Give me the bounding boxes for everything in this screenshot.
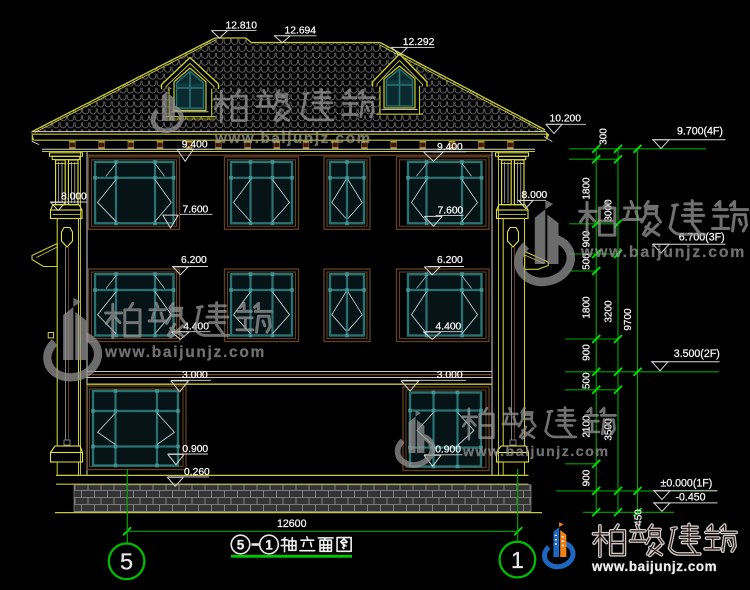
svg-text:-0.450: -0.450	[676, 492, 706, 504]
svg-text:10.200: 10.200	[550, 114, 582, 125]
svg-text:12.810: 12.810	[226, 20, 258, 31]
svg-text:500: 500	[582, 372, 593, 389]
svg-text:12600: 12600	[277, 518, 307, 530]
svg-text:0.260: 0.260	[184, 467, 210, 478]
svg-text:www.baijunjz.com: www.baijunjz.com	[591, 559, 717, 574]
svg-text:3.000: 3.000	[437, 370, 463, 381]
svg-text:1: 1	[265, 537, 273, 552]
svg-text:www.baijunjz.com: www.baijunjz.com	[580, 244, 746, 261]
svg-text:9700: 9700	[623, 308, 634, 331]
svg-text:7.600: 7.600	[438, 205, 464, 216]
svg-text:5: 5	[120, 549, 133, 575]
svg-text:6.200: 6.200	[181, 255, 207, 266]
svg-text:4.400: 4.400	[436, 322, 462, 333]
svg-text:±0.000(1F): ±0.000(1F)	[661, 477, 713, 489]
svg-text:9.400: 9.400	[437, 142, 463, 153]
svg-text:www.baijunjz.com: www.baijunjz.com	[104, 344, 266, 361]
svg-text:6.200: 6.200	[437, 255, 463, 266]
svg-text:12.694: 12.694	[285, 25, 317, 36]
svg-text:www.baijunjz.com: www.baijunjz.com	[214, 130, 372, 147]
svg-text:8.000: 8.000	[61, 192, 87, 203]
svg-text:900: 900	[582, 344, 593, 361]
svg-text:0.900: 0.900	[435, 445, 461, 456]
svg-text:www.baijunjz.com: www.baijunjz.com	[462, 444, 609, 460]
svg-text:9.700(4F): 9.700(4F)	[677, 126, 723, 138]
svg-text:7.600: 7.600	[183, 204, 209, 215]
svg-text:900: 900	[582, 469, 593, 486]
svg-text:1: 1	[511, 547, 524, 573]
svg-text:3200: 3200	[603, 300, 614, 323]
svg-text:5: 5	[237, 537, 245, 552]
svg-text:8.000: 8.000	[522, 190, 548, 201]
svg-text:300: 300	[599, 128, 610, 145]
svg-text:12.292: 12.292	[403, 37, 435, 48]
svg-text:2100: 2100	[582, 415, 593, 438]
svg-text:1800: 1800	[582, 177, 593, 200]
svg-text:0.900: 0.900	[182, 444, 208, 455]
svg-text:3000: 3000	[603, 199, 614, 222]
svg-text:3.000: 3.000	[182, 370, 208, 381]
svg-text:1800: 1800	[582, 296, 593, 319]
svg-text:450: 450	[634, 509, 645, 526]
svg-text:3.500(2F): 3.500(2F)	[674, 348, 720, 360]
